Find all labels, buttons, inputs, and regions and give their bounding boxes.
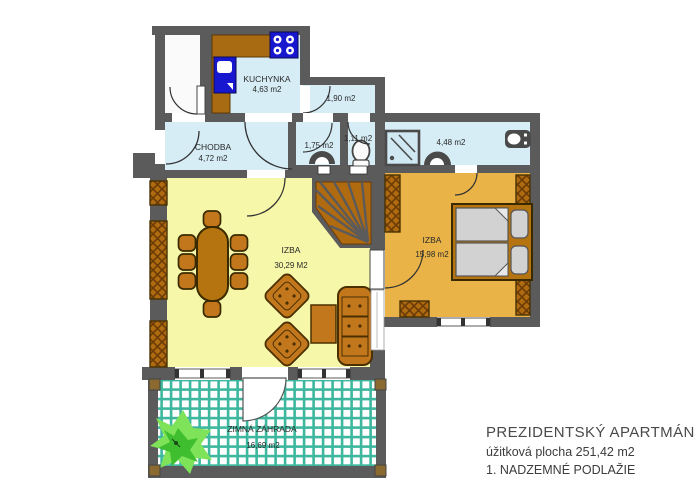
usable-area-text: úžitková plocha 251,42 m2 xyxy=(486,445,695,459)
dining-table xyxy=(197,227,228,301)
vestibule-door xyxy=(197,86,205,114)
wc2-area: 1,11 m2 xyxy=(344,134,373,143)
window xyxy=(175,369,230,378)
hallway-label: CHODBA xyxy=(195,142,232,152)
hallway-area: 4,72 m2 xyxy=(199,154,228,163)
bedroom-label: IZBA xyxy=(423,235,442,245)
entry-door xyxy=(155,130,165,164)
window xyxy=(371,290,384,350)
wc2-door xyxy=(348,113,370,122)
bedroom-area: 15,98 m2 xyxy=(415,250,449,259)
double-bed xyxy=(452,204,532,280)
bathroom-bedroom-door xyxy=(455,165,477,173)
winter-garden-label: ZIMNÁ ZÁHRADA xyxy=(227,424,297,434)
winter-garden-area: 16,69 m2 xyxy=(246,441,280,450)
wc1-area: 1,75 m2 xyxy=(305,141,334,150)
coffee-table xyxy=(311,305,336,343)
room-vestibule-floor xyxy=(165,35,200,113)
bathroom-area: 4,48 m2 xyxy=(437,138,466,147)
floor-level-text: 1. NADZEMNÉ PODLAŽIE xyxy=(486,463,695,477)
pantry-door xyxy=(300,86,310,113)
window xyxy=(437,318,490,326)
floorplan-page: KUCHYNKA 4,63 m2 1,90 m2 CHODBA 4,72 m2 … xyxy=(0,0,700,500)
sofa xyxy=(338,287,372,365)
window xyxy=(350,166,367,174)
kitchen-area: 4,63 m2 xyxy=(253,85,282,94)
stove-icon xyxy=(270,32,298,58)
wc1-door xyxy=(303,113,333,122)
hall-living-door xyxy=(247,170,285,178)
sink-icon xyxy=(505,130,531,148)
window xyxy=(298,369,350,378)
pantry-area: 1,90 m2 xyxy=(327,94,356,103)
apartment-title: PREZIDENTSKÝ APARTMÁN xyxy=(486,424,695,441)
living-room-label: IZBA xyxy=(282,245,301,255)
shower-icon xyxy=(386,131,419,165)
pillow xyxy=(511,210,528,238)
kitchen-label: KUCHYNKA xyxy=(243,74,291,84)
fridge-icon xyxy=(214,57,236,93)
toilet-icon xyxy=(353,141,370,168)
window xyxy=(318,166,330,174)
living-room-area: 30,29 M2 xyxy=(274,261,308,270)
kitchen-counter xyxy=(212,35,270,57)
title-block: PREZIDENTSKÝ APARTMÁN úžitková plocha 25… xyxy=(486,424,695,477)
pillow xyxy=(511,246,528,274)
living-bedroom-door xyxy=(370,250,384,289)
kitchen-hall-door xyxy=(245,113,292,122)
